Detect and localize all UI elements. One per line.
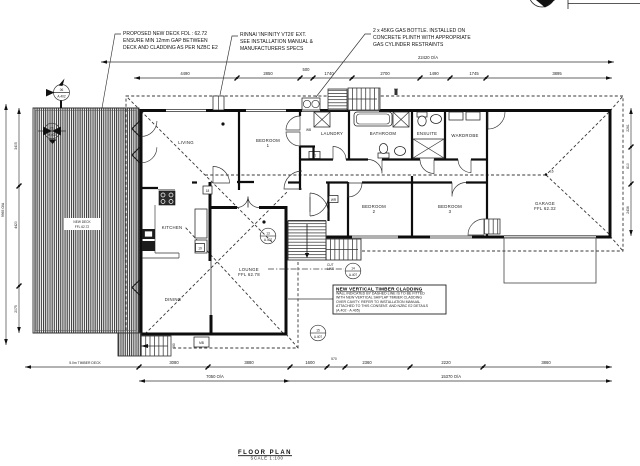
- svg-text:FFL 62.72: FFL 62.72: [75, 225, 90, 229]
- svg-text:2220: 2220: [441, 360, 451, 365]
- svg-text:2 x 45KG GAS BOTTLE. INSTALLED: 2 x 45KG GAS BOTTLE. INSTALLED ON: [373, 28, 466, 34]
- svg-text:BATHROOM: BATHROOM: [370, 131, 397, 136]
- svg-text:KITCHEN: KITCHEN: [162, 225, 183, 230]
- svg-text:2360: 2360: [362, 360, 372, 365]
- svg-text:FFL 62.78: FFL 62.78: [238, 272, 260, 277]
- svg-text:3080: 3080: [169, 360, 179, 365]
- svg-text:3895: 3895: [552, 71, 562, 76]
- svg-text:2261: 2261: [626, 124, 630, 132]
- svg-text:500: 500: [303, 67, 311, 72]
- svg-text:14: 14: [351, 267, 355, 271]
- svg-text:MB: MB: [199, 341, 204, 345]
- svg-text:3405: 3405: [14, 142, 18, 150]
- svg-text:2850: 2850: [263, 71, 273, 76]
- svg-text:A.402: A.402: [48, 133, 57, 137]
- svg-text:FFL 62.32: FFL 62.32: [534, 206, 556, 211]
- svg-text:18: 18: [206, 189, 210, 193]
- svg-text:PROPOSED NEW DECK FDL : 62.72: PROPOSED NEW DECK FDL : 62.72: [123, 31, 207, 37]
- svg-text:A.407: A.407: [264, 238, 273, 242]
- svg-text:16: 16: [550, 170, 554, 174]
- svg-text:WR: WR: [331, 198, 337, 202]
- svg-text:ENSURE MIN 12mm GAP BETWEEN: ENSURE MIN 12mm GAP BETWEEN: [123, 38, 208, 44]
- svg-text:SCALE 1:100: SCALE 1:100: [250, 456, 283, 461]
- svg-text:1600: 1600: [305, 360, 315, 365]
- svg-text:19: 19: [198, 246, 202, 250]
- svg-text:SEE INSTALLATION MANUAL &: SEE INSTALLATION MANUAL &: [240, 39, 314, 45]
- svg-text:2700: 2700: [380, 71, 390, 76]
- svg-text:WARDROBE: WARDROBE: [451, 133, 478, 138]
- svg-text:MANUFACTURERS SPECS: MANUFACTURERS SPECS: [240, 46, 304, 52]
- svg-text:2075: 2075: [14, 305, 18, 313]
- svg-text:15: 15: [316, 329, 320, 333]
- svg-text:ENSUITE: ENSUITE: [417, 131, 437, 136]
- svg-text:GAS CYLINDER RESTRAINTS: GAS CYLINDER RESTRAINTS: [373, 42, 444, 48]
- svg-text:2: 2: [373, 209, 376, 214]
- svg-text:1740: 1740: [324, 71, 334, 76]
- svg-text:7050 O/A: 7050 O/A: [206, 374, 224, 379]
- svg-text:810: 810: [626, 163, 630, 169]
- svg-text:06: 06: [60, 88, 64, 92]
- svg-text:4490: 4490: [180, 71, 190, 76]
- svg-text:180: 180: [172, 343, 176, 349]
- svg-text:2436: 2436: [626, 206, 630, 214]
- svg-text:NEW DECK: NEW DECK: [73, 220, 91, 224]
- svg-text:1: 1: [267, 143, 270, 148]
- svg-text:3860: 3860: [541, 360, 551, 365]
- svg-text:LIVING: LIVING: [178, 140, 194, 145]
- svg-text:22420 O/A: 22420 O/A: [418, 55, 438, 60]
- svg-text:DECK AND CLADDING AS PER NZBC: DECK AND CLADDING AS PER NZBC E2: [123, 45, 218, 51]
- svg-text:A.402: A.402: [57, 95, 66, 99]
- svg-text:1490: 1490: [429, 71, 439, 76]
- svg-text:15370 O/A: 15370 O/A: [441, 374, 461, 379]
- svg-text:A.407: A.407: [349, 273, 358, 277]
- svg-text:LINE: LINE: [327, 267, 334, 271]
- svg-text:13: 13: [266, 232, 270, 236]
- svg-text:01: 01: [50, 127, 54, 131]
- svg-text:3880: 3880: [244, 360, 254, 365]
- svg-text:RINNAI 'INFINITY VT26' EXT.: RINNAI 'INFINITY VT26' EXT.: [240, 32, 306, 38]
- svg-text:WB: WB: [306, 128, 311, 132]
- svg-text:1745: 1745: [469, 71, 479, 76]
- svg-text:4420: 4420: [14, 221, 18, 229]
- svg-text:CONCRETE PLINTH WITH APPROPRIA: CONCRETE PLINTH WITH APPROPRIATE: [373, 35, 471, 41]
- svg-text:570: 570: [331, 357, 337, 361]
- svg-text:9965 O/A: 9965 O/A: [1, 202, 5, 217]
- svg-text:A.407: A.407: [314, 335, 323, 339]
- svg-text:LAUNDRY: LAUNDRY: [321, 131, 343, 136]
- svg-text:3: 3: [449, 209, 452, 214]
- svg-text:(A.402 - A.405): (A.402 - A.405): [336, 308, 360, 312]
- svg-text:DINING: DINING: [165, 297, 182, 302]
- svg-text:5.0m TIMBER DECK: 5.0m TIMBER DECK: [69, 361, 101, 365]
